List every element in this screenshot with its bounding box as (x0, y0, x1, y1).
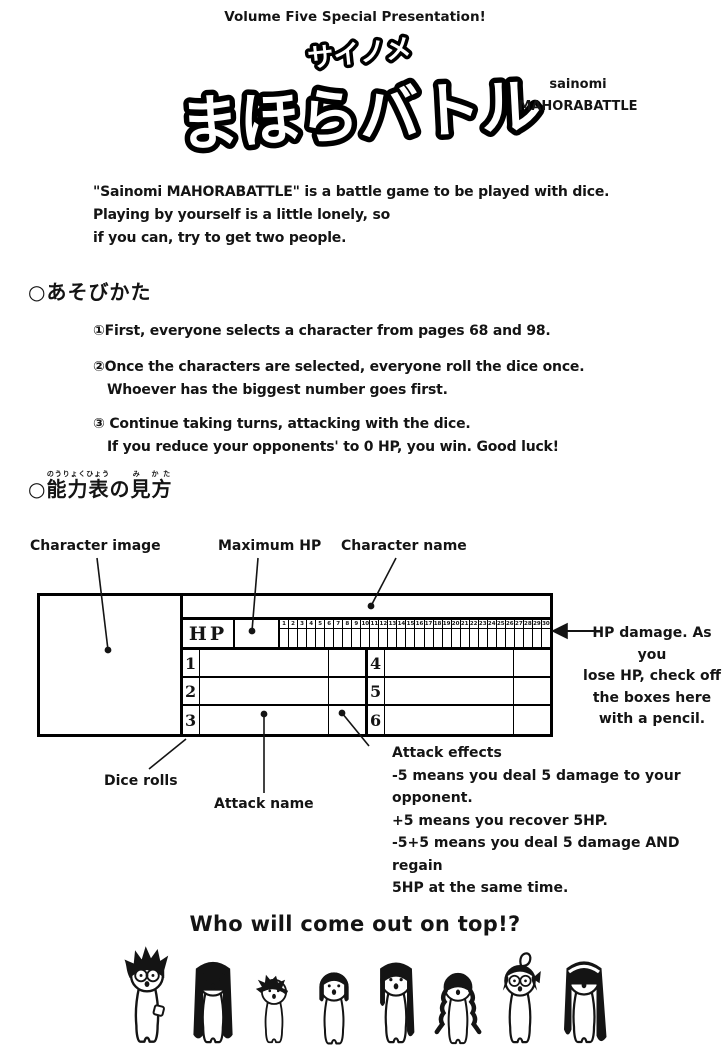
hp-box-4: 4 (307, 620, 316, 647)
label-character-name: Character name (341, 538, 467, 554)
logo-romaji-line2: MAHORABATTLE (508, 96, 648, 118)
hp-box-strip: 1234567891011121314151617181920212223242… (280, 620, 550, 647)
dice-number-cell: 5 (368, 678, 385, 704)
hp-box-17: 17 (425, 620, 434, 647)
attack-name-cell (200, 706, 329, 734)
chart-guide-heading: ○能力表のうりょくひょうの見方み かた (28, 470, 172, 502)
intro-paragraph: "Sainomi MAHORABATTLE" is a battle game … (93, 181, 609, 250)
page-header: Volume Five Special Presentation! (0, 9, 728, 25)
character-image-box (37, 593, 183, 737)
attacks-right-column: 4 5 6 (368, 650, 550, 734)
chibi-girl-glasses-ahoge (495, 949, 545, 1047)
arrow-left-icon (553, 624, 567, 638)
dice-number-cell: 3 (183, 706, 200, 734)
hp-box-2: 2 (289, 620, 298, 647)
dice-number-cell: 4 (368, 650, 385, 676)
intro-line: "Sainomi MAHORABATTLE" is a battle game … (93, 181, 609, 204)
step-2-number: ② (93, 359, 105, 375)
attack-name-cell (385, 650, 514, 676)
furigana-ability-chart: のうりょくひょう (46, 470, 109, 478)
attack-effect-cell (514, 678, 550, 704)
attack-row: 3 (183, 706, 365, 734)
step-2-text: Once the characters are selected, everyo… (105, 359, 585, 375)
attack-row: 4 (368, 650, 550, 678)
hp-box-20: 20 (452, 620, 461, 647)
hp-box-24: 24 (488, 620, 497, 647)
logo-romaji: sainomi MAHORABATTLE (508, 74, 648, 118)
furigana-how-to-read: み かた (130, 470, 172, 478)
hp-box-9: 9 (352, 620, 361, 647)
stats-section: HP 1234567891011121314151617181920212223… (180, 593, 553, 737)
hp-box-3: 3 (298, 620, 307, 647)
hp-box-6: 6 (325, 620, 334, 647)
hp-box-18: 18 (434, 620, 443, 647)
hp-box-25: 25 (497, 620, 506, 647)
hp-damage-note-line: the boxes here (578, 688, 726, 710)
hp-box-21: 21 (461, 620, 470, 647)
chibi-girl-headband-long-hair (558, 947, 610, 1047)
heading-particle: の (109, 477, 130, 501)
bullet-circle: ○ (28, 280, 46, 304)
hp-box-19: 19 (443, 620, 452, 647)
chibi-spiky-hair-boy-with-glasses (119, 941, 175, 1047)
hp-box-16: 16 (415, 620, 424, 647)
hp-label: HP (183, 620, 235, 647)
footer-tagline: Who will come out on top!? (0, 912, 728, 936)
attack-effect-cell (329, 650, 365, 676)
step-1-number: ① (93, 323, 105, 339)
manga-page: Volume Five Special Presentation! サイノメ ま… (0, 0, 728, 1053)
attack-effect-cell (329, 706, 365, 734)
hp-box-22: 22 (470, 620, 479, 647)
attack-name-cell (385, 678, 514, 704)
logo-furigana: サイノメ (306, 34, 413, 75)
ability-table: HP 1234567891011121314151617181920212223… (37, 593, 553, 737)
step-3-number: ③ (93, 416, 109, 432)
character-name-row (183, 596, 550, 620)
attack-effect-cell (514, 706, 550, 734)
attack-name-cell (200, 678, 329, 704)
attack-effects-line: -5 means you deal 5 damage to your (392, 765, 702, 788)
hp-box-12: 12 (379, 620, 388, 647)
hp-box-23: 23 (479, 620, 488, 647)
hp-box-30: 30 (542, 620, 550, 647)
hp-box-5: 5 (316, 620, 325, 647)
hp-damage-note-line: lose HP, check off (578, 666, 726, 688)
intro-line: Playing by yourself is a little lonely, … (93, 204, 609, 227)
attack-effect-cell (514, 650, 550, 676)
label-dice-rolls: Dice rolls (104, 773, 178, 789)
attack-name-cell (385, 706, 514, 734)
chibi-girl-twin-braids (434, 953, 482, 1047)
attack-effects-line: Attack effects (392, 742, 702, 765)
attack-row: 6 (368, 706, 550, 734)
hp-box-8: 8 (343, 620, 352, 647)
logo: サイノメ まほらバトル (165, 28, 565, 163)
step-1-text: First, everyone selects a character from… (105, 323, 551, 339)
attack-row: 5 (368, 678, 550, 706)
hp-box-7: 7 (334, 620, 343, 647)
dice-number-cell: 1 (183, 650, 200, 676)
attack-effects-note: Attack effects -5 means you deal 5 damag… (392, 742, 702, 900)
label-attack-name: Attack name (214, 796, 314, 812)
attacks-section: 1 2 3 (183, 650, 550, 734)
chibi-girl-long-straight-hair (188, 949, 238, 1047)
hp-box-13: 13 (388, 620, 397, 647)
step-2-text-line2: Whoever has the biggest number goes firs… (93, 379, 584, 402)
attack-name-cell (200, 650, 329, 676)
attack-row: 1 (183, 650, 365, 678)
hp-box-15: 15 (406, 620, 415, 647)
how-to-play-heading-text: あそびかた (46, 280, 151, 304)
attack-effects-line: +5 means you recover 5HP. (392, 810, 702, 833)
heading-kanji-how-to-read: 見方 (130, 477, 172, 501)
dice-icon (153, 1005, 164, 1016)
dice-number-cell: 2 (183, 678, 200, 704)
label-character-image: Character image (30, 538, 161, 554)
hp-box-28: 28 (524, 620, 533, 647)
attack-effect-cell (329, 678, 365, 704)
bullet-circle: ○ (28, 477, 46, 501)
hp-box-27: 27 (515, 620, 524, 647)
hp-box-10: 10 (361, 620, 370, 647)
attack-effects-line: -5+5 means you deal 5 damage AND regain (392, 832, 702, 877)
hp-damage-note-line: with a pencil. (578, 709, 726, 731)
hp-box-26: 26 (506, 620, 515, 647)
hp-box-29: 29 (533, 620, 542, 647)
attack-effects-line: 5HP at the same time. (392, 877, 702, 900)
hp-row: HP 1234567891011121314151617181920212223… (183, 620, 550, 650)
logo-romaji-line1: sainomi (508, 74, 648, 96)
dice-number-cell: 6 (368, 706, 385, 734)
hp-damage-note: HP damage. As you lose HP, check off the… (578, 623, 726, 731)
step-3-text: Continue taking turns, attacking with th… (109, 416, 470, 432)
step-2: ②Once the characters are selected, every… (93, 356, 584, 402)
intro-line: if you can, try to get two people. (93, 227, 609, 250)
step-3-text-line2: If you reduce your opponents' to 0 HP, y… (93, 436, 559, 459)
attack-row: 2 (183, 678, 365, 706)
hp-box-11: 11 (370, 620, 379, 647)
heading-kanji-ability-chart: 能力表 (46, 477, 109, 501)
attacks-left-column: 1 2 3 (183, 650, 368, 734)
chibi-girl-bob-hair (310, 953, 358, 1047)
maximum-hp-cell (235, 620, 280, 647)
hp-box-1: 1 (280, 620, 289, 647)
step-3: ③ Continue taking turns, attacking with … (93, 413, 559, 459)
step-1: ①First, everyone selects a character fro… (93, 320, 551, 343)
chibi-girl-long-hair-bangs (371, 949, 421, 1047)
chibi-boy-messy-hair (251, 957, 297, 1047)
hp-damage-note-line: HP damage. As you (578, 623, 726, 666)
label-maximum-hp: Maximum HP (218, 538, 321, 554)
attack-effects-line: opponent. (392, 787, 702, 810)
character-lineup (0, 941, 728, 1047)
hp-box-14: 14 (397, 620, 406, 647)
how-to-play-heading: ○あそびかた (28, 276, 151, 305)
logo-main: まほらバトル (178, 72, 543, 161)
